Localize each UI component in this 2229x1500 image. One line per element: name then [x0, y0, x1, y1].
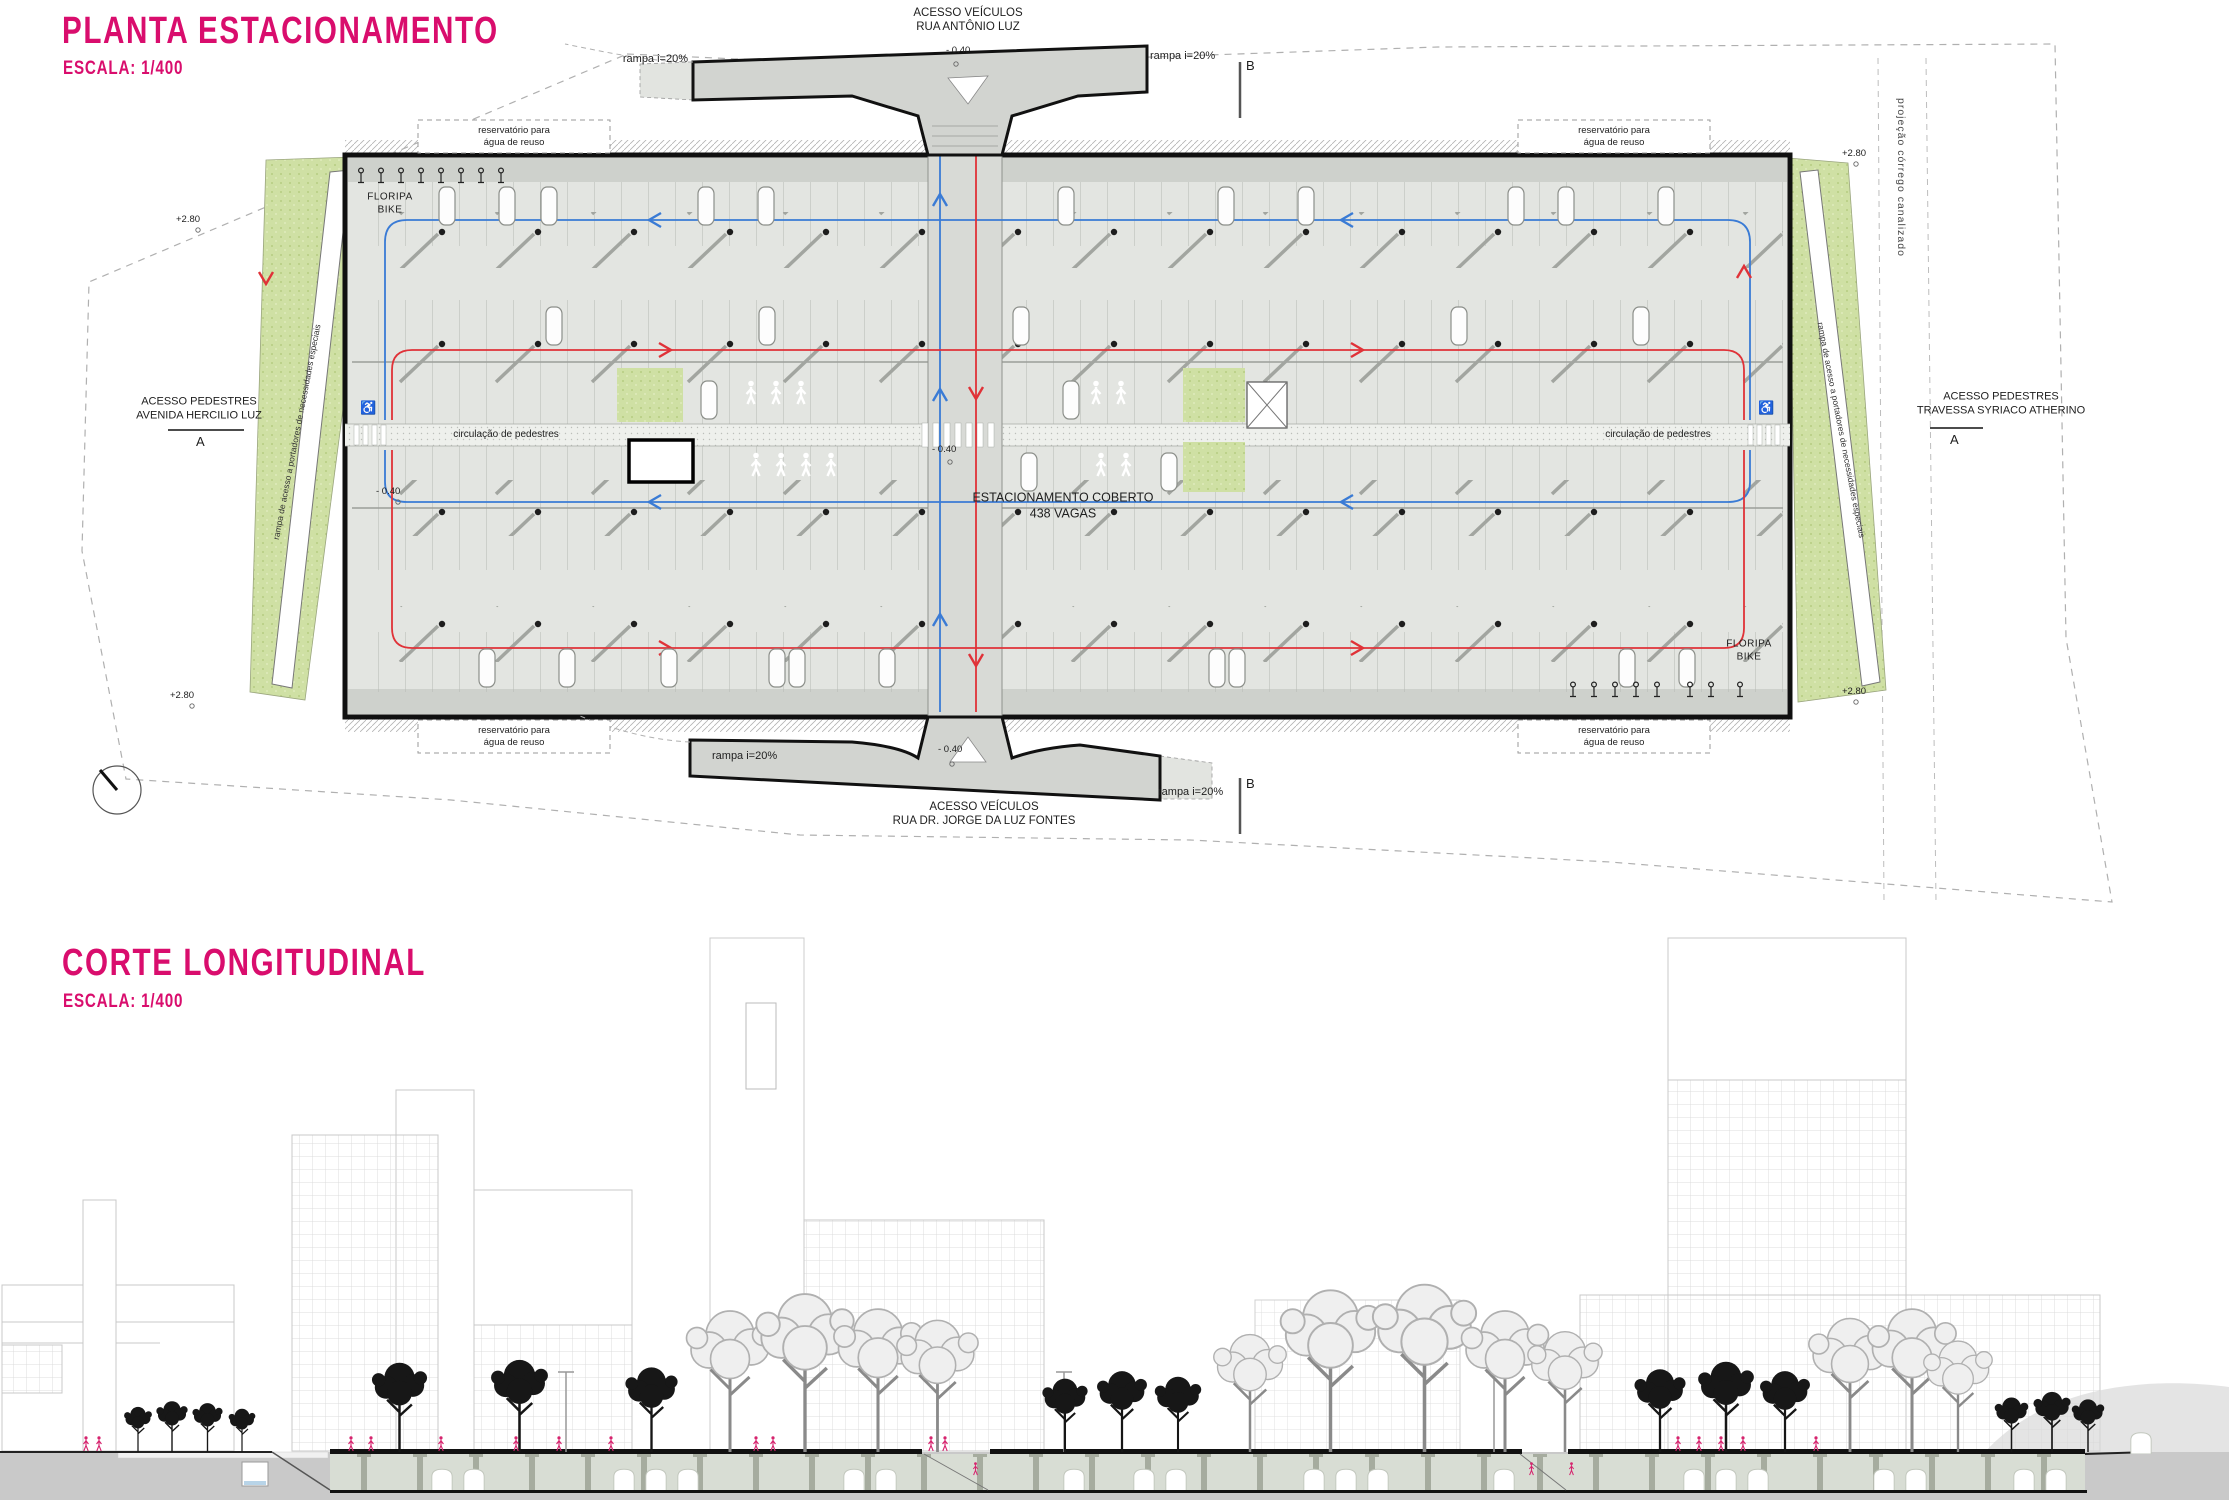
reservoir-label-bl: reservatório paraágua de reuso: [478, 725, 550, 749]
pedestrian-access-right: ACESSO PEDESTRESTRAVESSA SYRIACO ATHERIN…: [1906, 390, 2096, 418]
pedestrian-circulation-right: circulação de pedestres: [1605, 429, 1711, 442]
floripa-bike-top: FLORIPABIKE: [367, 192, 413, 217]
elev-040: - 0.40: [932, 444, 956, 456]
access-bottom-label: ACESSO VEÍCULOS RUA DR. JORGE DA LUZ FON…: [893, 800, 1076, 829]
ramp-label-top-left: rampa i=20%: [568, 53, 688, 67]
parking-building: [345, 155, 1790, 717]
ground-section: [0, 1449, 2229, 1500]
elev-040: - 0.40: [946, 45, 970, 57]
plan-scale: ESCALA: 1/400: [63, 57, 183, 81]
elev-280: +2.80: [1842, 686, 1866, 698]
wheelchair-icon: ♿: [1758, 400, 1774, 415]
pedestrian-spine: [345, 424, 1790, 446]
wheelchair-icon: ♿: [360, 400, 376, 415]
pedestrian-access-left: ACESSO PEDESTRESAVENIDA HERCILIO LUZ: [112, 395, 287, 423]
access-top-label: ACESSO VEÍCULOS RUA ANTÔNIO LUZ: [913, 6, 1022, 35]
floripa-bike-bottom: FLORIPABIKE: [1726, 639, 1772, 664]
architectural-sheet: ♿ ♿: [0, 0, 2229, 1500]
reservoir-label-tl: reservatório paraágua de reuso: [478, 125, 550, 149]
section-marker-a-left: A: [196, 434, 205, 450]
surface-car: [2131, 1433, 2151, 1454]
section-marker-b-top: B: [1246, 58, 1255, 74]
ramp-label-top-right: rampa i=20%: [1150, 50, 1215, 64]
reservoir-label-br: reservatório paraágua de reuso: [1578, 725, 1650, 749]
elev-280: +2.80: [170, 690, 194, 702]
reservoir-cube: [242, 1462, 268, 1486]
section-drawing: [0, 935, 2229, 1500]
elev-040: - 0.40: [376, 486, 400, 498]
section-title: CORTE LONGITUDINAL: [62, 940, 426, 988]
ramp-label-bottom-left: rampa i=20%: [712, 750, 777, 764]
section-marker-a-right: A: [1950, 432, 1959, 448]
plan-title: PLANTA ESTACIONAMENTO: [62, 8, 499, 56]
pedestrian-circulation-left: circulação de pedestres: [453, 429, 559, 442]
section-marker-b-bottom: B: [1246, 776, 1255, 792]
section-scale: ESCALA: 1/400: [63, 990, 183, 1014]
covered-parking-label: ESTACIONAMENTO COBERTO438 VAGAS: [933, 490, 1193, 521]
elev-040: - 0.40: [938, 744, 962, 756]
elev-280: +2.80: [1842, 148, 1866, 160]
stream-label: projeção córrego canalizado: [1894, 98, 1907, 257]
elev-280: +2.80: [176, 214, 200, 226]
north-arrow-icon: [93, 766, 141, 814]
reservoir-label-tr: reservatório paraágua de reuso: [1578, 125, 1650, 149]
ramp-label-bottom-right: rampa i=20%: [1158, 786, 1223, 800]
